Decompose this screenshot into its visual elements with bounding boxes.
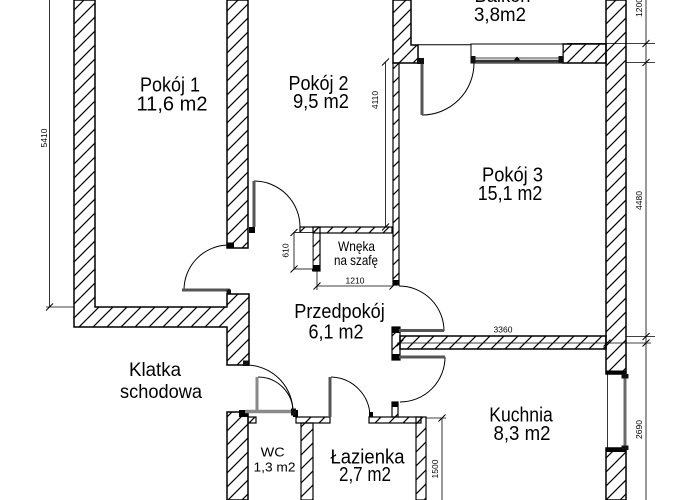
svg-text:9,5 m2: 9,5 m2 xyxy=(293,90,349,113)
svg-text:11,6 m2: 11,6 m2 xyxy=(137,93,208,116)
svg-text:1,3 m2: 1,3 m2 xyxy=(254,460,296,474)
svg-text:610: 610 xyxy=(281,243,291,257)
svg-text:5410: 5410 xyxy=(39,128,49,147)
svg-text:15,1 m2: 15,1 m2 xyxy=(478,182,543,205)
svg-text:1500: 1500 xyxy=(430,459,440,478)
svg-text:3360: 3360 xyxy=(494,325,513,335)
svg-text:3,8m2: 3,8m2 xyxy=(474,5,526,26)
svg-text:schodowa: schodowa xyxy=(120,381,202,403)
svg-text:4110: 4110 xyxy=(370,91,380,110)
svg-text:2,7 m2: 2,7 m2 xyxy=(339,464,391,486)
svg-text:8,3 m2: 8,3 m2 xyxy=(494,422,551,445)
svg-text:Klatka: Klatka xyxy=(129,359,181,381)
svg-text:na szafę: na szafę xyxy=(334,252,378,268)
svg-text:4480: 4480 xyxy=(634,191,644,210)
svg-text:WC: WC xyxy=(261,444,285,459)
svg-text:2690: 2690 xyxy=(634,420,644,439)
svg-text:1200: 1200 xyxy=(634,0,644,17)
svg-text:1210: 1210 xyxy=(346,276,365,286)
svg-text:6,1 m2: 6,1 m2 xyxy=(309,321,364,344)
